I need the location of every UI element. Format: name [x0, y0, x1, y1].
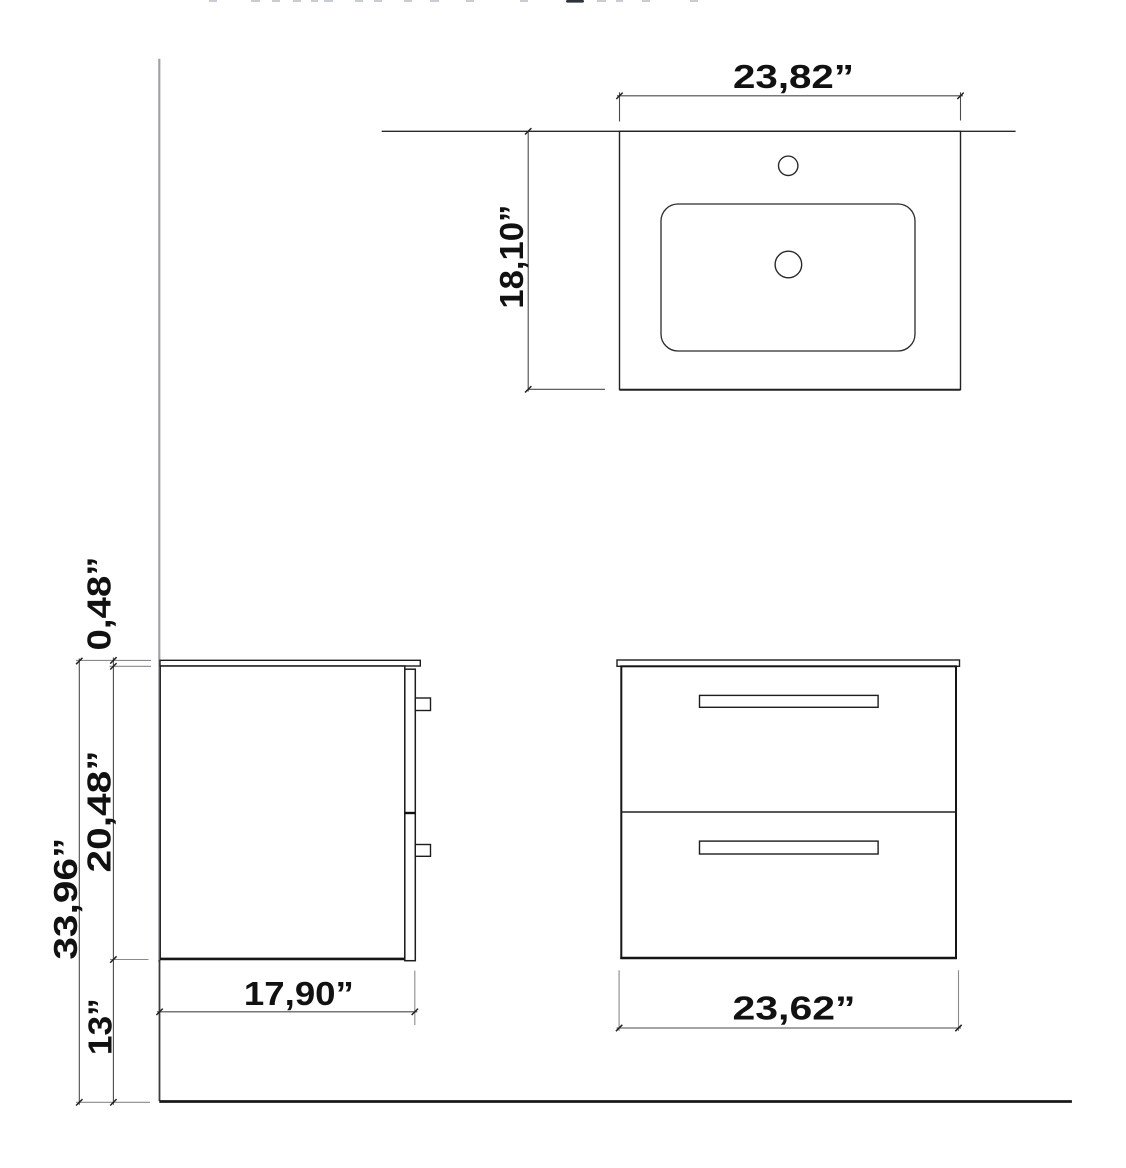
- svg-text:0,48”: 0,48”: [82, 557, 119, 651]
- svg-text:18,10”: 18,10”: [494, 205, 531, 309]
- svg-text:23,82”: 23,82”: [733, 59, 854, 96]
- svg-text:33,96”: 33,96”: [48, 838, 85, 960]
- svg-text:17,90”: 17,90”: [244, 976, 354, 1013]
- svg-text:23,62”: 23,62”: [733, 991, 856, 1028]
- svg-text:13”: 13”: [83, 998, 120, 1055]
- svg-text:20,48”: 20,48”: [82, 751, 119, 873]
